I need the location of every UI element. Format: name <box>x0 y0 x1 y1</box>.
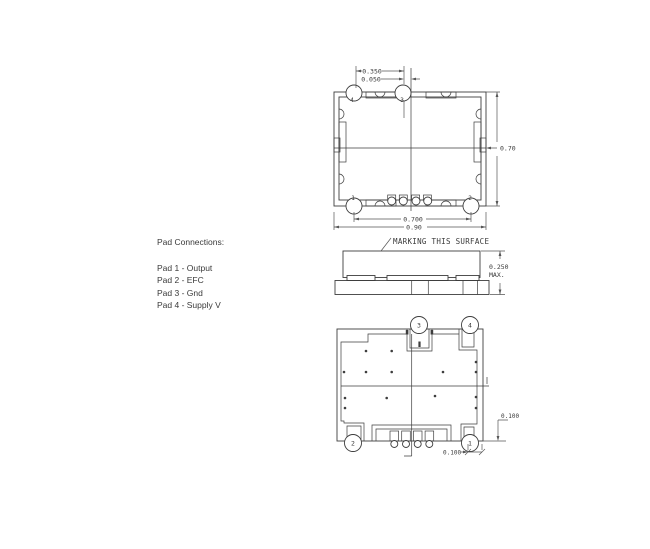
via-dot <box>475 371 478 374</box>
dim-070: 0.70 <box>500 145 516 153</box>
castellation-hole <box>424 197 432 205</box>
arrowhead <box>399 70 404 73</box>
dim-0250: 0.250 <box>489 263 509 271</box>
tick-mark <box>418 342 420 348</box>
arrowhead <box>354 218 359 221</box>
pad-connection-item: Pad 2 - EFC <box>157 274 224 286</box>
arrowhead <box>399 78 404 81</box>
arrowhead <box>496 201 499 206</box>
arrowhead <box>334 226 339 229</box>
top-view-pad4-circle <box>346 85 362 101</box>
tick-mark <box>406 330 409 335</box>
castellation-hole <box>391 441 398 448</box>
arrowhead <box>486 147 491 150</box>
via-dot <box>365 371 368 374</box>
pad-connection-item: Pad 4 - Supply V <box>157 299 224 311</box>
castellation-pad <box>402 431 411 441</box>
castellation-pad <box>413 431 422 441</box>
arrowhead <box>481 226 486 229</box>
via-dot <box>434 395 437 398</box>
top-view-lid <box>339 97 481 200</box>
castellation-hole <box>388 197 396 205</box>
arrowhead <box>411 78 416 81</box>
side-view-base-joints <box>412 281 478 295</box>
marking-note: MARKING THIS SURFACE <box>393 237 489 246</box>
top-view-pad2-label: 2 <box>468 195 472 202</box>
castellation-pad <box>425 431 434 441</box>
bottom-view-via-dots <box>343 350 478 410</box>
castellation-pad <box>390 431 399 441</box>
dim-pad-height: 0.100 <box>501 413 519 420</box>
castellation-hole <box>399 197 407 205</box>
top-view-pad-strips <box>334 92 486 206</box>
via-dot <box>475 407 478 410</box>
drawing-canvas: 4 3 1 2 0.350 0.050 0.70 <box>0 0 650 549</box>
bottom-view-pad1-label: 1 <box>468 440 472 448</box>
via-dot <box>475 396 478 399</box>
bottom-view: 3 4 2 1 0.100 0.100 <box>337 317 519 457</box>
arrowhead <box>466 218 471 221</box>
top-view: 4 3 1 2 0.350 0.050 0.70 <box>334 66 516 232</box>
dim-090: 0.90 <box>406 224 422 232</box>
pad-connections-title: Pad Connections: <box>157 236 224 248</box>
castellation-hole <box>412 197 420 205</box>
dim-0050: 0.050 <box>361 76 381 84</box>
top-view-castellation-bumps <box>339 92 481 206</box>
via-dot <box>442 371 445 374</box>
tick-mark <box>431 330 434 335</box>
dim-line-pad-height <box>483 420 508 441</box>
bottom-view-pad2-label: 2 <box>351 440 355 448</box>
bottom-view-inner-outline <box>341 329 477 441</box>
via-dot <box>343 371 346 374</box>
arrowhead <box>499 251 502 256</box>
via-dot <box>344 407 347 410</box>
top-view-pad4-label: 4 <box>350 97 354 104</box>
dim-max-label: MAX. <box>489 271 505 279</box>
side-view-pad <box>347 276 375 281</box>
castellation-hole <box>403 441 410 448</box>
side-view-pad <box>456 276 479 281</box>
bottom-view-pad4-label: 4 <box>468 322 472 330</box>
side-view-body <box>343 251 480 278</box>
via-dot <box>365 350 368 353</box>
arrowhead <box>356 70 361 73</box>
pad-connection-item: Pad 3 - Gnd <box>157 287 224 299</box>
side-view-pad <box>387 276 448 281</box>
top-view-pad1-label: 1 <box>351 195 355 202</box>
side-view: MARKING THIS SURFACE 0.250 MAX. <box>335 237 509 295</box>
dim-0700: 0.700 <box>403 216 423 224</box>
via-dot <box>390 350 393 353</box>
side-view-dimensions: 0.250 MAX. <box>481 251 509 295</box>
top-view-outer-body <box>334 92 486 206</box>
via-dot <box>385 397 388 400</box>
package-drawing-svg: 4 3 1 2 0.350 0.050 0.70 <box>0 0 650 549</box>
marking-leader-line <box>381 238 391 251</box>
bottom-view-pad3-label: 3 <box>417 322 421 330</box>
pad-connection-item: Pad 1 - Output <box>157 262 224 274</box>
castellation-hole <box>426 441 433 448</box>
dim-line-070 <box>491 92 497 206</box>
arrowhead <box>499 290 502 295</box>
pad-connections-block: Pad Connections: Pad 1 - Output Pad 2 - … <box>157 236 224 311</box>
via-dot <box>475 361 478 364</box>
arrowhead <box>497 436 500 441</box>
dim-pad-width: 0.100 <box>443 450 461 457</box>
via-dot <box>390 371 393 374</box>
dim-0350: 0.350 <box>362 68 382 76</box>
via-dot <box>344 397 347 400</box>
castellation-hole <box>414 441 421 448</box>
arrowhead <box>496 92 499 97</box>
bottom-view-dimensions: 0.100 0.100 <box>443 413 519 457</box>
top-view-pad3-label: 3 <box>400 97 404 104</box>
